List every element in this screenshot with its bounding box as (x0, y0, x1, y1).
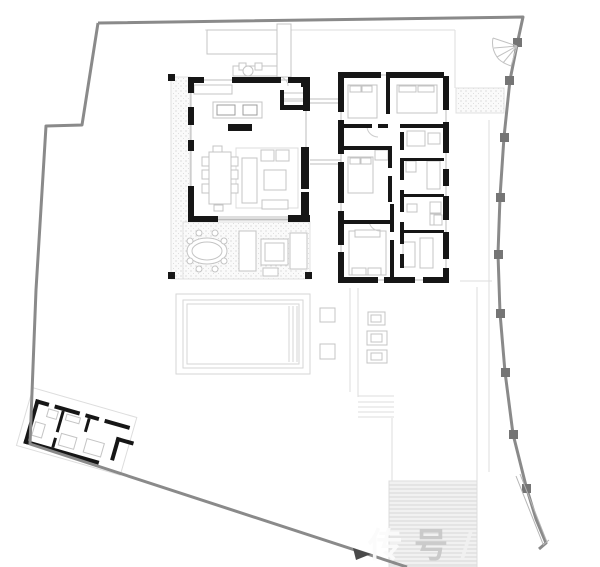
house-wall (188, 216, 218, 222)
furniture (255, 63, 262, 70)
furniture (209, 152, 231, 204)
pool-edge (183, 300, 303, 368)
furniture (406, 161, 416, 172)
house-wall (423, 277, 444, 283)
fence-post (496, 309, 505, 318)
house-wall (341, 72, 381, 78)
furniture (207, 30, 277, 54)
furniture (239, 231, 256, 271)
furniture (371, 353, 382, 360)
house-wall (344, 124, 372, 128)
house-wall (188, 107, 194, 125)
outbuilding-wall (84, 418, 91, 432)
outbuilding-fixture (65, 414, 80, 424)
fence-post (494, 250, 503, 259)
house-wall (443, 76, 449, 110)
outbuilding-fixture (47, 409, 59, 419)
furniture (202, 170, 209, 179)
furniture (263, 268, 278, 276)
furniture (213, 146, 222, 152)
deck-chairs (187, 238, 193, 244)
house-wall (232, 77, 281, 83)
pool-edge (176, 294, 310, 374)
house-wall (344, 220, 390, 224)
driveway-hatch (389, 481, 477, 567)
house-wall (443, 232, 449, 259)
furniture (265, 243, 284, 261)
furniture (362, 86, 372, 92)
furniture (276, 150, 289, 161)
furniture (371, 315, 381, 322)
house-wall (301, 192, 309, 215)
boundary-arrow (353, 548, 371, 560)
house-wall (188, 140, 194, 151)
house-wall (400, 254, 404, 268)
house-wall (378, 124, 388, 128)
house-wall (384, 277, 415, 283)
furniture (262, 200, 288, 209)
pergola-post (305, 272, 312, 279)
furniture (290, 233, 307, 269)
house-wall (400, 124, 444, 128)
house-wall (390, 240, 394, 277)
pergola-post (168, 272, 175, 279)
house-wall (301, 147, 309, 189)
deck-chairs (196, 230, 202, 236)
outbuilding (16, 388, 140, 477)
house-wall (338, 252, 344, 283)
house-wall (338, 162, 344, 203)
furniture (261, 150, 274, 161)
furniture (231, 184, 238, 193)
house-wall (400, 158, 404, 180)
house-wall (344, 146, 390, 150)
fence-post (509, 430, 518, 439)
furniture (350, 158, 360, 164)
deck-chairs (187, 258, 193, 264)
furniture (403, 242, 415, 267)
outbuilding-fixture (83, 439, 104, 457)
house-wall (400, 190, 404, 212)
house-wall (188, 77, 194, 93)
furniture (277, 24, 291, 77)
house-wall (386, 78, 390, 114)
house-wall (280, 105, 310, 110)
house-wall (341, 277, 378, 283)
furniture (428, 133, 440, 144)
house-wall (400, 132, 404, 150)
fence-post (496, 193, 505, 202)
pergola-post (168, 74, 175, 81)
furniture (320, 308, 335, 322)
outbuilding-wall (85, 413, 100, 421)
house-wall (338, 72, 344, 112)
furniture (352, 268, 366, 275)
furniture (399, 86, 416, 92)
furniture (430, 202, 441, 213)
fence-post (513, 38, 522, 47)
house-wall (301, 77, 310, 87)
gate-ramp (520, 474, 547, 542)
fence-post (501, 368, 510, 377)
floor-plan-page: 传号/ (0, 0, 600, 567)
furniture (375, 150, 388, 160)
gate-fan-arc (493, 38, 512, 66)
furniture (283, 93, 304, 99)
furniture (350, 86, 361, 92)
house-wall (386, 72, 444, 78)
furniture (407, 131, 425, 146)
furniture (434, 215, 442, 225)
house-wall (228, 124, 252, 131)
house-wall (404, 158, 444, 161)
furniture (420, 238, 433, 268)
furniture (213, 102, 262, 118)
outbuilding-fixture (32, 422, 45, 438)
furniture (355, 230, 380, 237)
outbuilding-wall (51, 437, 57, 447)
furniture (368, 268, 381, 275)
house-wall (443, 169, 449, 186)
furniture (320, 344, 335, 359)
furniture (242, 158, 257, 203)
house-wall (404, 194, 444, 197)
fence-post (500, 133, 509, 142)
deck-chairs (196, 266, 202, 272)
house-wall (338, 211, 344, 245)
furniture (202, 157, 209, 166)
house-wall (338, 120, 344, 154)
house-wall (400, 222, 404, 244)
furniture (214, 205, 223, 211)
fence-post (505, 76, 514, 85)
furniture (202, 184, 209, 193)
outdoor-table (192, 242, 222, 260)
deck-chairs (243, 66, 253, 76)
deck-chairs (212, 230, 218, 236)
deck-chairs (212, 266, 218, 272)
house-wall (388, 176, 392, 202)
terrace-hatch (456, 88, 504, 113)
house-wall (404, 230, 444, 233)
pool-edge (187, 304, 299, 364)
furniture (371, 334, 382, 342)
house-wall (388, 146, 392, 168)
floor-plan-svg (0, 0, 600, 567)
house-wall (443, 196, 449, 220)
house-wall (288, 215, 310, 222)
furniture (361, 158, 371, 164)
furniture (427, 161, 440, 189)
house-wall (390, 204, 394, 232)
deck-chairs (221, 238, 227, 244)
plan-root (16, 17, 549, 567)
furniture (407, 204, 417, 212)
furniture (264, 170, 286, 190)
furniture (231, 170, 238, 179)
deck-chairs (221, 258, 227, 264)
furniture (231, 157, 238, 166)
furniture (194, 85, 232, 94)
furniture (418, 86, 434, 92)
outbuilding-fixture (58, 433, 77, 449)
outbuilding-wall (104, 419, 130, 430)
